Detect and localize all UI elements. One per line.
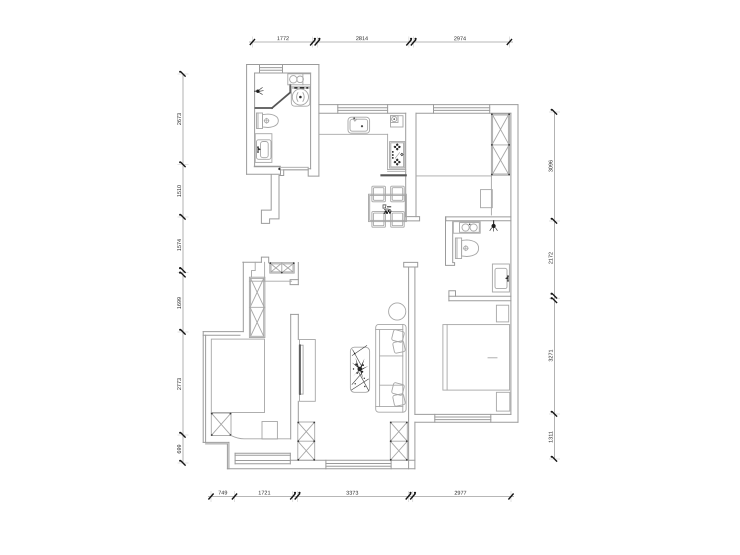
svg-text:1721: 1721: [258, 491, 270, 497]
svg-text:2977: 2977: [454, 491, 466, 497]
svg-text:699: 699: [177, 444, 183, 453]
svg-text:1311: 1311: [549, 431, 555, 443]
svg-text:1510: 1510: [177, 185, 183, 197]
svg-text:3373: 3373: [346, 491, 358, 497]
svg-text:2814: 2814: [356, 36, 368, 42]
svg-text:1699: 1699: [177, 297, 183, 309]
svg-text:2673: 2673: [177, 113, 183, 125]
svg-text:2773: 2773: [177, 378, 183, 390]
svg-text:749: 749: [218, 491, 227, 497]
svg-text:3271: 3271: [549, 349, 555, 361]
svg-text:1574: 1574: [177, 239, 183, 251]
svg-text:2974: 2974: [454, 36, 466, 42]
svg-text:3096: 3096: [549, 160, 555, 172]
svg-text:2172: 2172: [549, 252, 555, 264]
svg-text:1772: 1772: [277, 36, 289, 42]
